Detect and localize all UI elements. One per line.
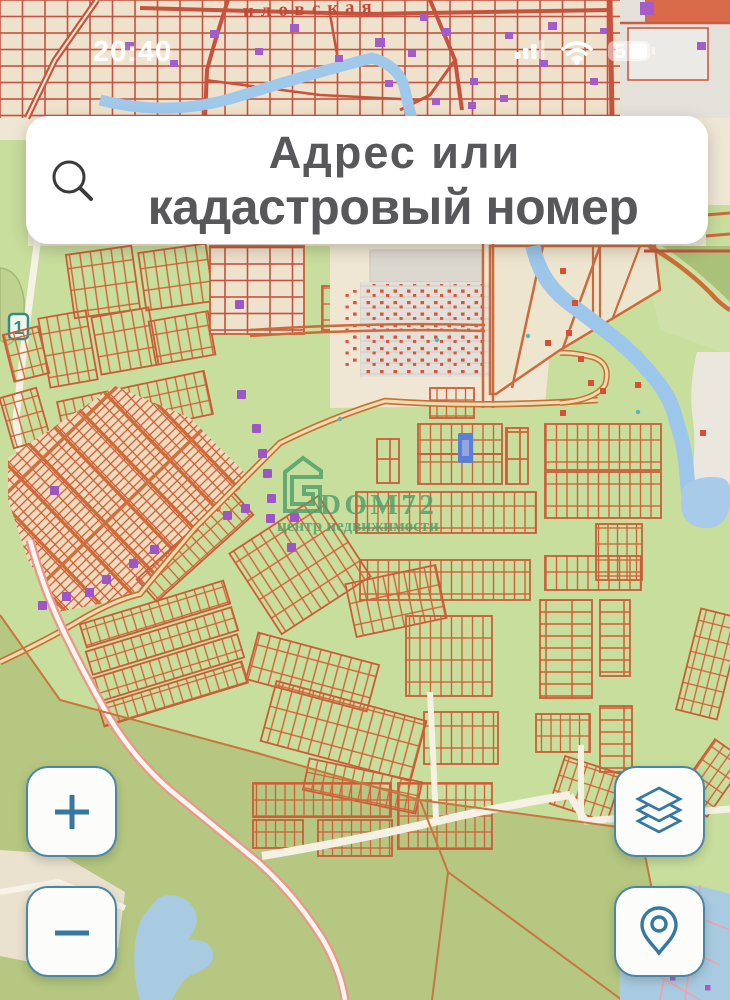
svg-text:5: 5	[614, 41, 625, 63]
svg-text:центр недвижимости: центр недвижимости	[277, 516, 439, 535]
